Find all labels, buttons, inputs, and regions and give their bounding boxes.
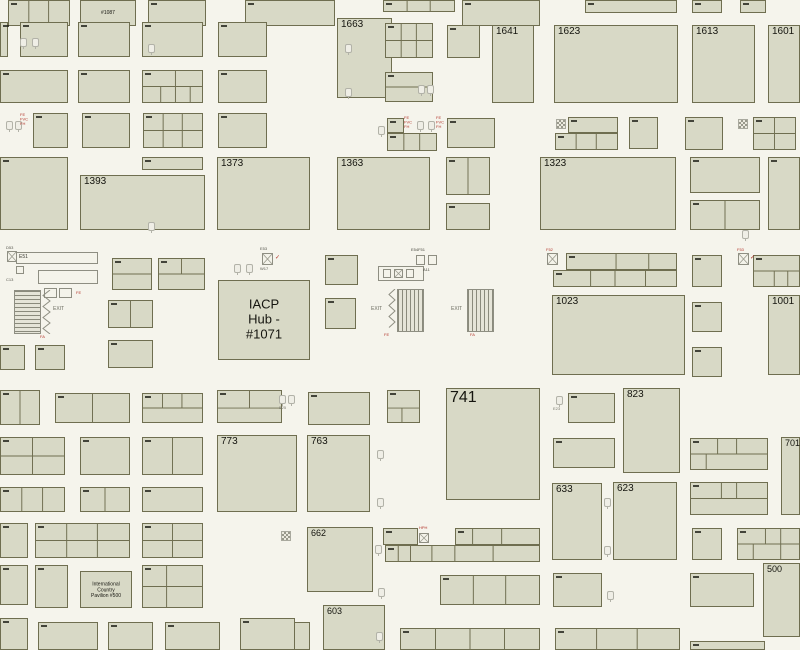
fire-annotation-label: FE — [384, 333, 389, 337]
booth-divider-lines — [159, 259, 204, 289]
column-marker-icon — [281, 531, 291, 541]
booth-701[interactable]: 701 — [781, 437, 800, 515]
booth-label: 823 — [627, 389, 644, 401]
booth-divider-lines — [691, 201, 759, 229]
booth-label: 500 — [767, 564, 782, 574]
exit-label: EXIT — [371, 306, 382, 312]
booth[interactable] — [446, 157, 490, 195]
annotation-label: C13 — [6, 278, 13, 282]
booth-1373[interactable]: 1373 — [217, 157, 310, 230]
fire-annotation-label: HPH — [419, 526, 427, 530]
utility-port-icon — [32, 38, 39, 47]
booth[interactable] — [690, 641, 765, 650]
booth[interactable] — [387, 133, 437, 151]
utility-port-icon — [417, 121, 424, 130]
fire-annotation-label: ✓ — [750, 254, 755, 261]
booth-divider-lines — [143, 438, 202, 474]
utility-port-icon — [378, 588, 385, 597]
booth-divider-lines — [81, 488, 129, 511]
annotation-label: B25 — [279, 406, 286, 410]
column-marker-icon — [738, 119, 748, 129]
booth-label: 1641 — [496, 26, 518, 38]
booth[interactable] — [447, 118, 495, 148]
booth-divider-lines — [1, 391, 39, 424]
booth[interactable] — [692, 528, 722, 560]
utility-port-icon — [375, 545, 382, 554]
booth[interactable] — [108, 300, 153, 328]
booth-label: 1663 — [341, 19, 363, 31]
booth-divider-lines — [456, 529, 539, 544]
equipment-rect — [428, 255, 437, 265]
booth[interactable] — [692, 255, 722, 287]
booth[interactable] — [142, 487, 203, 512]
booth[interactable] — [692, 0, 722, 13]
fire-annotation-label: FE FVC FH — [20, 113, 28, 126]
booth-label: 1623 — [558, 26, 580, 38]
booth[interactable] — [142, 565, 203, 608]
booth[interactable] — [20, 22, 68, 57]
booth[interactable] — [553, 573, 602, 607]
booth-divider-lines — [556, 134, 617, 149]
booth[interactable] — [142, 437, 203, 475]
booth-divider-lines — [36, 524, 129, 557]
booth-1363[interactable]: 1363 — [337, 157, 430, 230]
booth[interactable] — [690, 573, 754, 607]
booth-823[interactable]: 823 — [623, 388, 680, 473]
booth[interactable] — [690, 157, 760, 193]
booth[interactable] — [218, 113, 267, 148]
booth-divider-lines — [384, 1, 454, 11]
booth[interactable] — [768, 157, 800, 230]
booth[interactable] — [80, 437, 130, 475]
booth-iacp-hub-1071[interactable]: IACP Hub - #1071 — [218, 280, 310, 360]
booth[interactable] — [692, 347, 722, 377]
booth-1601[interactable]: 1601 — [768, 25, 800, 103]
utility-port-icon — [246, 264, 253, 273]
booth[interactable] — [308, 392, 370, 425]
booth[interactable] — [555, 133, 618, 150]
utility-port-icon — [377, 450, 384, 459]
equipment-box-icon — [419, 533, 429, 543]
booth-773[interactable]: 773 — [217, 435, 297, 512]
booth-1393[interactable]: 1393 — [80, 175, 205, 230]
booth-1641[interactable]: 1641 — [492, 25, 534, 103]
equipment-rect — [16, 266, 24, 274]
exit-label: EXIT — [451, 306, 462, 312]
equipment-rect — [59, 288, 72, 298]
fire-annotation-label: F53 — [737, 248, 744, 252]
stair-hatch — [397, 289, 424, 332]
utility-port-icon — [148, 222, 155, 231]
booth-label: 773 — [221, 436, 238, 448]
equipment-box-icon — [738, 253, 749, 265]
equipment-box-icon — [547, 253, 558, 265]
fire-annotation-label: FE — [76, 291, 81, 295]
booth[interactable] — [35, 565, 68, 608]
booth[interactable] — [142, 157, 203, 170]
booth-divider-lines — [143, 524, 202, 557]
booth[interactable] — [753, 117, 796, 150]
booth-divider-lines — [388, 391, 419, 422]
booth[interactable] — [387, 390, 420, 423]
booth[interactable] — [400, 628, 540, 650]
fire-annotation-label: F52 — [546, 248, 553, 252]
booth-divider-lines — [386, 546, 539, 561]
booth[interactable] — [585, 0, 677, 13]
booth[interactable] — [0, 618, 28, 650]
booth-label: IACP Hub - #1071 — [246, 298, 282, 343]
booth[interactable] — [108, 622, 153, 650]
booth[interactable] — [240, 618, 295, 650]
booth[interactable] — [553, 270, 677, 287]
booth-label: 1393 — [84, 176, 106, 188]
booth[interactable] — [165, 622, 220, 650]
annotation-label: W17 — [260, 267, 268, 271]
booth[interactable] — [33, 113, 68, 148]
booth[interactable] — [38, 622, 98, 650]
booth[interactable] — [55, 393, 130, 423]
booth[interactable] — [112, 258, 152, 290]
utility-port-icon — [6, 121, 13, 130]
booth[interactable] — [440, 575, 540, 605]
utility-port-icon — [279, 395, 286, 404]
booth[interactable] — [217, 390, 282, 423]
utility-port-icon — [604, 546, 611, 555]
utility-port-icon — [345, 88, 352, 97]
booth-divider-lines — [218, 391, 281, 422]
annotation-label: A11 — [423, 268, 430, 272]
booth-divider-lines — [691, 439, 767, 469]
booth-1663[interactable]: 1663 — [337, 18, 392, 98]
booth[interactable] — [383, 0, 455, 12]
booth-divider-lines — [386, 24, 432, 57]
booth-divider-lines — [388, 134, 436, 150]
utility-port-icon — [604, 498, 611, 507]
booth-label: 1363 — [341, 158, 363, 170]
booth[interactable] — [158, 258, 205, 290]
booth-divider-lines — [1, 488, 64, 511]
booth-divider-lines — [441, 576, 539, 604]
booth[interactable] — [462, 0, 540, 26]
booth-1323[interactable]: 1323 — [540, 157, 676, 230]
booth-1023[interactable]: 1023 — [552, 295, 685, 375]
floor-map[interactable]: #108716631641162316131601139313731363132… — [0, 0, 800, 650]
utility-port-icon — [234, 264, 241, 273]
booth[interactable] — [0, 22, 8, 57]
booth[interactable] — [218, 22, 267, 57]
booth[interactable] — [385, 72, 433, 102]
utility-port-icon — [427, 85, 434, 94]
booth-741[interactable]: 741 — [446, 388, 540, 500]
booth[interactable] — [142, 523, 203, 558]
booth-divider-lines — [556, 629, 679, 649]
booth[interactable] — [0, 565, 28, 605]
booth-label: 701 — [785, 438, 800, 448]
equipment-rect — [406, 269, 414, 278]
booth-623[interactable]: 623 — [613, 482, 677, 560]
equipment-box-icon — [262, 253, 273, 265]
booth-603[interactable]: 603 — [323, 605, 385, 650]
booth[interactable] — [325, 255, 358, 285]
column-marker-icon — [556, 119, 566, 129]
booth[interactable] — [553, 438, 615, 468]
booth[interactable] — [35, 345, 65, 370]
booth[interactable] — [753, 255, 800, 287]
fire-annotation-label: FA — [470, 333, 475, 337]
booth[interactable] — [108, 340, 153, 368]
booth[interactable] — [78, 22, 130, 57]
utility-port-icon — [288, 395, 295, 404]
fire-annotation-label: ✓ — [275, 254, 280, 261]
booth-label: 1601 — [772, 26, 794, 38]
booth[interactable] — [385, 545, 540, 562]
booth-divider-lines — [567, 254, 676, 269]
booth-divider-lines — [754, 118, 795, 149]
equipment-rect — [38, 270, 98, 284]
booth[interactable] — [0, 437, 65, 475]
booth[interactable] — [0, 157, 68, 230]
booth-1613[interactable]: 1613 — [692, 25, 755, 103]
utility-port-icon — [345, 44, 352, 53]
booth-label: 623 — [617, 483, 634, 495]
booth-divider-lines — [386, 73, 432, 101]
booth-633[interactable]: 633 — [552, 483, 602, 560]
booth-divider-lines — [738, 529, 799, 559]
booth[interactable] — [692, 302, 722, 332]
booth-divider-lines — [143, 566, 202, 607]
booth[interactable] — [80, 487, 130, 512]
booth[interactable] — [555, 628, 680, 650]
booth[interactable] — [737, 528, 800, 560]
booth-divider-lines — [1, 438, 64, 474]
stair-zigzag-icon — [388, 289, 396, 332]
booth[interactable] — [82, 113, 130, 148]
booth[interactable] — [0, 70, 68, 103]
booth[interactable] — [455, 528, 540, 545]
annotation-label: E53 — [260, 247, 267, 251]
booth[interactable] — [218, 70, 267, 103]
booth-divider-lines — [109, 301, 152, 327]
booth[interactable] — [568, 393, 615, 423]
booth-label: #1087 — [101, 10, 115, 16]
booth-divider-lines — [554, 271, 676, 286]
booth-divider-lines — [143, 71, 202, 102]
booth-divider-lines — [401, 629, 539, 649]
equipment-box-icon — [394, 269, 403, 278]
booth-divider-lines — [691, 483, 767, 514]
equipment-rect — [383, 269, 391, 278]
fire-annotation-label: FA — [40, 335, 45, 339]
booth[interactable] — [385, 23, 433, 58]
booth[interactable] — [690, 438, 768, 470]
booth-divider-lines — [754, 256, 799, 286]
booth-divider-lines — [447, 158, 489, 194]
booth[interactable] — [387, 118, 404, 133]
booth-divider-lines — [144, 114, 202, 147]
utility-port-icon — [378, 126, 385, 135]
booth[interactable] — [142, 393, 203, 423]
booth-662[interactable]: 662 — [307, 527, 373, 592]
booth[interactable] — [568, 117, 618, 133]
utility-port-icon — [428, 121, 435, 130]
booth[interactable] — [629, 117, 658, 149]
booth[interactable] — [690, 200, 760, 230]
booth[interactable] — [78, 70, 130, 103]
booth[interactable] — [0, 390, 40, 425]
booth-label: 1323 — [544, 158, 566, 170]
utility-port-icon — [418, 85, 425, 94]
stair-hatch — [467, 289, 494, 332]
booth-international-country-pavilion-500[interactable]: International Country Pavilion #500 — [80, 571, 132, 608]
booth[interactable] — [566, 253, 677, 270]
booth[interactable] — [446, 203, 490, 230]
exit-label: EXIT — [53, 306, 64, 312]
booth-label: 633 — [556, 484, 573, 496]
utility-port-icon — [377, 498, 384, 507]
stair-hatch — [14, 290, 41, 334]
equipment-rect — [16, 252, 98, 264]
booth-label: 662 — [311, 528, 326, 538]
booth[interactable] — [142, 70, 203, 103]
fire-annotation-label: FE FVC FH — [404, 116, 412, 129]
booth[interactable] — [0, 523, 28, 558]
booth-label: 1023 — [556, 296, 578, 308]
booth[interactable] — [383, 528, 418, 545]
booth-label: 603 — [327, 606, 342, 616]
booth-1623[interactable]: 1623 — [554, 25, 678, 103]
booth[interactable] — [447, 25, 480, 58]
equipment-rect — [416, 255, 425, 265]
utility-port-icon — [742, 230, 749, 239]
annotation-label: D53 — [6, 246, 13, 250]
booth[interactable] — [0, 345, 25, 370]
annotation-label: E54F51 — [411, 248, 425, 252]
booth-divider-lines — [143, 394, 202, 422]
booth-label: 1613 — [696, 26, 718, 38]
booth-divider-lines — [56, 394, 129, 422]
booth[interactable] — [35, 523, 130, 558]
utility-port-icon — [556, 396, 563, 405]
booth-label: 763 — [311, 436, 328, 448]
booth-500[interactable]: 500 — [763, 563, 800, 637]
fire-annotation-label: FE FVC FH — [436, 116, 444, 129]
booth[interactable] — [325, 298, 356, 329]
utility-port-icon — [376, 632, 383, 641]
booth-label: 1373 — [221, 158, 243, 170]
annotation-label: E23 — [553, 407, 560, 411]
booth-1001[interactable]: 1001 — [768, 295, 800, 375]
booth[interactable] — [685, 117, 723, 150]
booth[interactable] — [740, 0, 766, 13]
booth-763[interactable]: 763 — [307, 435, 370, 512]
stair-zigzag-icon — [42, 290, 51, 334]
booth-divider-lines — [113, 259, 151, 289]
booth-label: International Country Pavilion #500 — [91, 581, 121, 598]
booth-label: 741 — [450, 389, 477, 407]
utility-port-icon — [148, 44, 155, 53]
booth-label: 1001 — [772, 296, 794, 308]
booth[interactable] — [143, 113, 203, 148]
utility-port-icon — [607, 591, 614, 600]
booth[interactable] — [690, 482, 768, 515]
booth[interactable] — [0, 487, 65, 512]
annotation-label: E51 — [19, 254, 28, 260]
utility-port-icon — [20, 38, 27, 47]
